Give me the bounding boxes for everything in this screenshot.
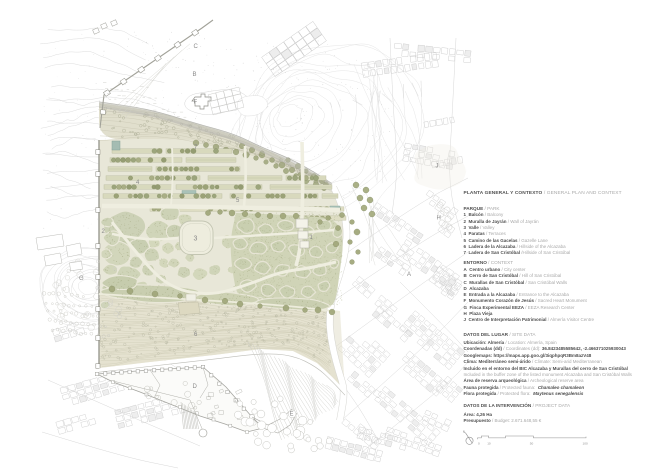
svg-text:0: 0 <box>478 441 480 445</box>
svg-text:D: D <box>193 384 198 390</box>
svg-text:100: 100 <box>583 441 588 445</box>
svg-text:C: C <box>194 44 199 50</box>
svg-text:E: E <box>290 412 294 418</box>
svg-text:A: A <box>407 272 411 278</box>
svg-text:G: G <box>79 276 84 282</box>
svg-text:B: B <box>193 72 197 78</box>
svg-text:F: F <box>194 100 198 106</box>
svg-text:J: J <box>436 164 439 170</box>
svg-text:N: N <box>463 430 466 434</box>
svg-text:50: 50 <box>530 441 534 445</box>
svg-text:10: 10 <box>487 441 491 445</box>
svg-text:H: H <box>437 216 441 222</box>
svg-text:3: 3 <box>194 236 198 243</box>
